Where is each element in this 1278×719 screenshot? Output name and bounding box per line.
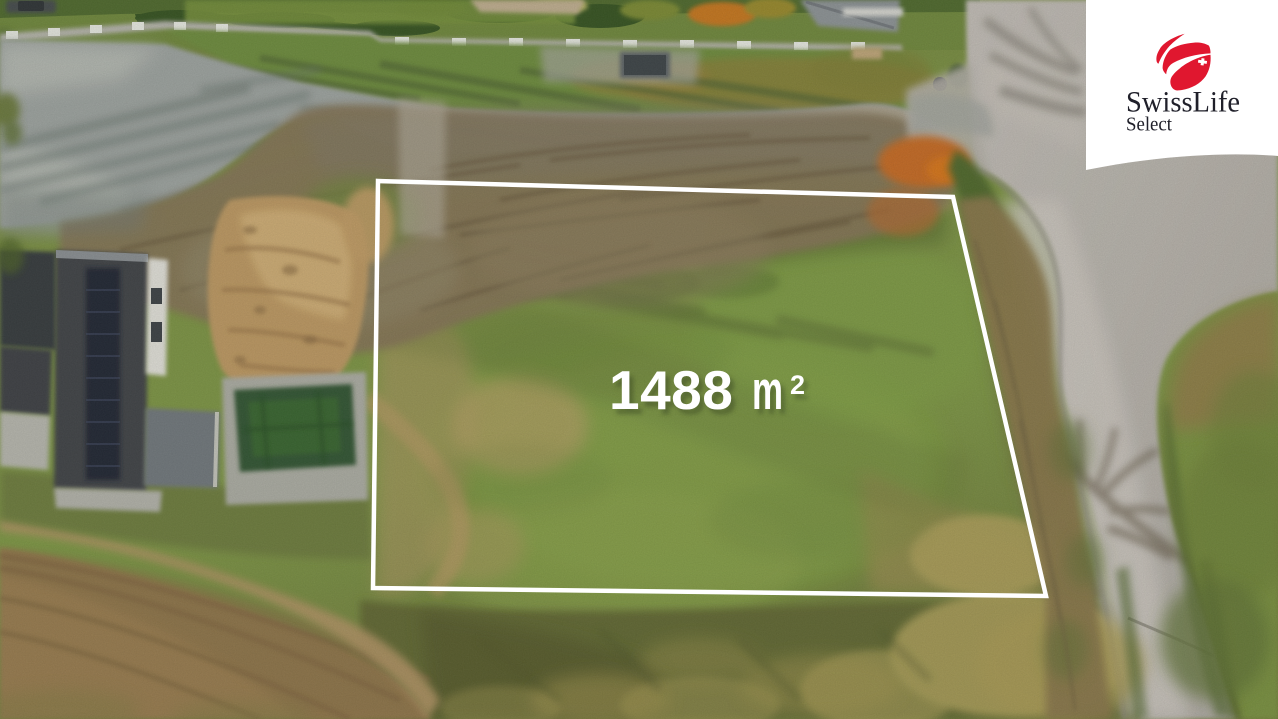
svg-text:Select: Select bbox=[1126, 114, 1172, 136]
